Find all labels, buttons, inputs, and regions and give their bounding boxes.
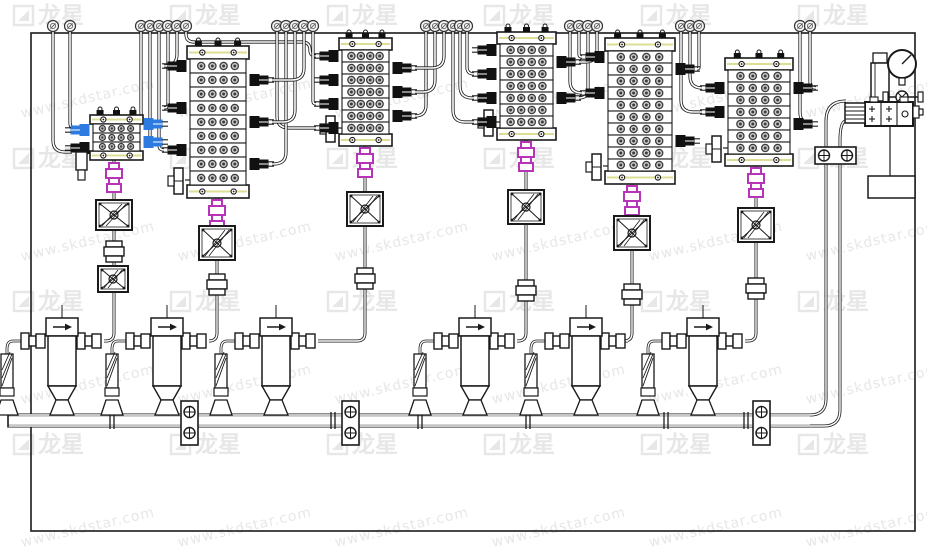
watermark-url: www.skdstar.com: [333, 504, 470, 550]
filter-unit-5: [520, 305, 625, 415]
watermark-logo: 龙星: [352, 289, 398, 315]
watermark-logo: 龙星: [823, 432, 869, 458]
watermark-url: www.skdstar.com: [176, 218, 313, 264]
balloon-marker: [462, 21, 473, 32]
pressure-gauge-icon: [888, 50, 916, 85]
watermark-logo: 龙星: [509, 432, 555, 458]
filter-unit-3: [210, 305, 315, 415]
lube-point-callouts: [48, 21, 816, 32]
distributor-2: [314, 30, 417, 146]
balloon-marker: [592, 21, 603, 32]
lubrication-system-diagram: 龙星www.skdstar.com龙星www.skdstar.com龙星www.…: [0, 0, 927, 551]
watermark-url: www.skdstar.com: [19, 361, 156, 407]
distributor-3: [472, 24, 581, 140]
watermark-logo: 龙星: [352, 3, 398, 29]
watermark-url: www.skdstar.com: [804, 504, 927, 550]
balloon-marker: [65, 21, 76, 32]
drop-chain-2: [199, 198, 235, 341]
watermark-logo: 龙星: [823, 289, 869, 315]
balloon-marker: [308, 21, 319, 32]
watermark-logo: 龙星: [195, 3, 241, 29]
balloon-marker: [694, 21, 705, 32]
watermark-logo: 龙星: [195, 432, 241, 458]
balloon-marker: [795, 21, 806, 32]
watermark-url: www.skdstar.com: [176, 504, 313, 550]
balloon-marker: [805, 21, 816, 32]
watermark-logo: 龙星: [666, 146, 712, 172]
watermark-logo: 龙星: [666, 432, 712, 458]
watermark-logo: 龙星: [509, 3, 555, 29]
balloon-marker: [48, 21, 59, 32]
drawing-area: 龙星www.skdstar.com龙星www.skdstar.com龙星www.…: [0, 0, 927, 551]
watermark-logo: 龙星: [38, 289, 84, 315]
balloon-marker: [181, 21, 192, 32]
watermark-logo: 龙星: [666, 289, 712, 315]
drop-chain-5: [614, 184, 650, 341]
drop-chain-1: [96, 160, 132, 341]
watermark-url: www.skdstar.com: [19, 504, 156, 550]
watermark-logo: 龙星: [823, 3, 869, 29]
drop-chain-6: [738, 166, 774, 341]
watermark-url: www.skdstar.com: [804, 361, 927, 407]
watermark-logo: 龙星: [38, 432, 84, 458]
watermark-url: www.skdstar.com: [647, 504, 784, 550]
watermark-logo: 龙星: [38, 3, 84, 29]
watermark-url: www.skdstar.com: [490, 504, 627, 550]
watermark-url: www.skdstar.com: [19, 218, 156, 264]
watermark-url: www.skdstar.com: [804, 218, 927, 264]
watermark-url: www.skdstar.com: [490, 361, 627, 407]
watermark-url: www.skdstar.com: [490, 218, 627, 264]
